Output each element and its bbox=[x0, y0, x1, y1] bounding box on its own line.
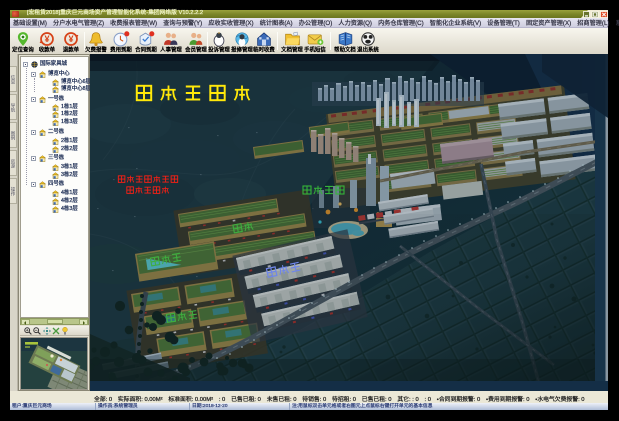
svg-text:¥: ¥ bbox=[68, 34, 73, 44]
svg-text:¥: ¥ bbox=[44, 34, 49, 44]
